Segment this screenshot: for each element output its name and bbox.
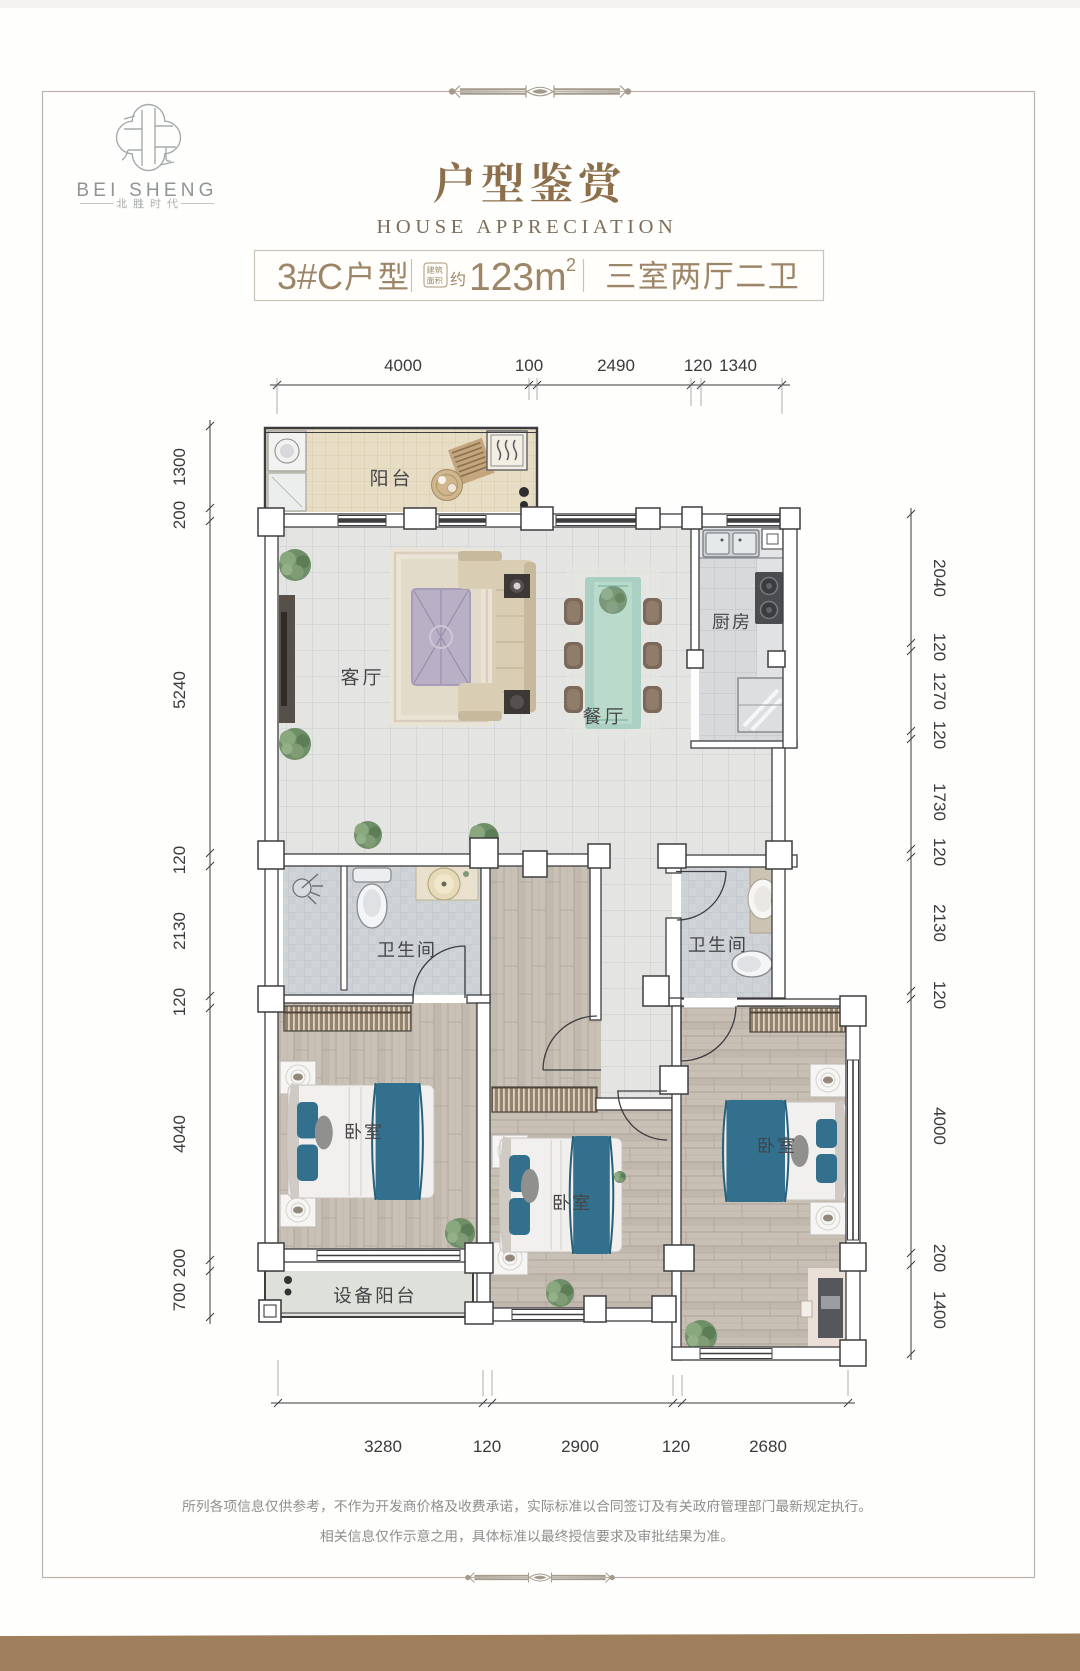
svg-text:120: 120 [930,981,949,1009]
svg-text:5240: 5240 [170,671,189,709]
svg-text:1400: 1400 [930,1291,949,1329]
svg-text:2490: 2490 [597,356,635,375]
svg-text:HOUSE APPRECIATION: HOUSE APPRECIATION [377,216,678,238]
svg-text:1300: 1300 [170,448,189,486]
svg-text:1270: 1270 [930,672,949,710]
svg-text:200: 200 [930,1244,949,1272]
svg-text:200: 200 [170,501,189,529]
svg-text:123m: 123m [469,256,567,299]
svg-text:2: 2 [566,255,576,275]
svg-text:3#C: 3#C [277,256,343,297]
svg-text:1340: 1340 [719,356,757,375]
svg-text:200: 200 [170,1249,189,1277]
svg-text:120: 120 [170,988,189,1016]
svg-text:4000: 4000 [930,1107,949,1145]
svg-text:2130: 2130 [930,904,949,942]
svg-text:120: 120 [473,1437,501,1456]
svg-text:2900: 2900 [561,1437,599,1456]
svg-text:3280: 3280 [364,1437,402,1456]
svg-text:120: 120 [930,633,949,661]
svg-text:100: 100 [515,356,543,375]
svg-text:2680: 2680 [749,1437,787,1456]
svg-text:120: 120 [170,846,189,874]
svg-text:120: 120 [662,1437,690,1456]
svg-text:2130: 2130 [170,912,189,950]
svg-text:120: 120 [930,721,949,749]
svg-text:4000: 4000 [384,356,422,375]
svg-text:120: 120 [930,838,949,866]
svg-text:700: 700 [170,1283,189,1311]
svg-text:BEI SHENG: BEI SHENG [76,180,217,201]
svg-text:1730: 1730 [930,783,949,821]
svg-text:2040: 2040 [930,559,949,597]
svg-text:4040: 4040 [170,1115,189,1153]
svg-text:120: 120 [684,356,712,375]
